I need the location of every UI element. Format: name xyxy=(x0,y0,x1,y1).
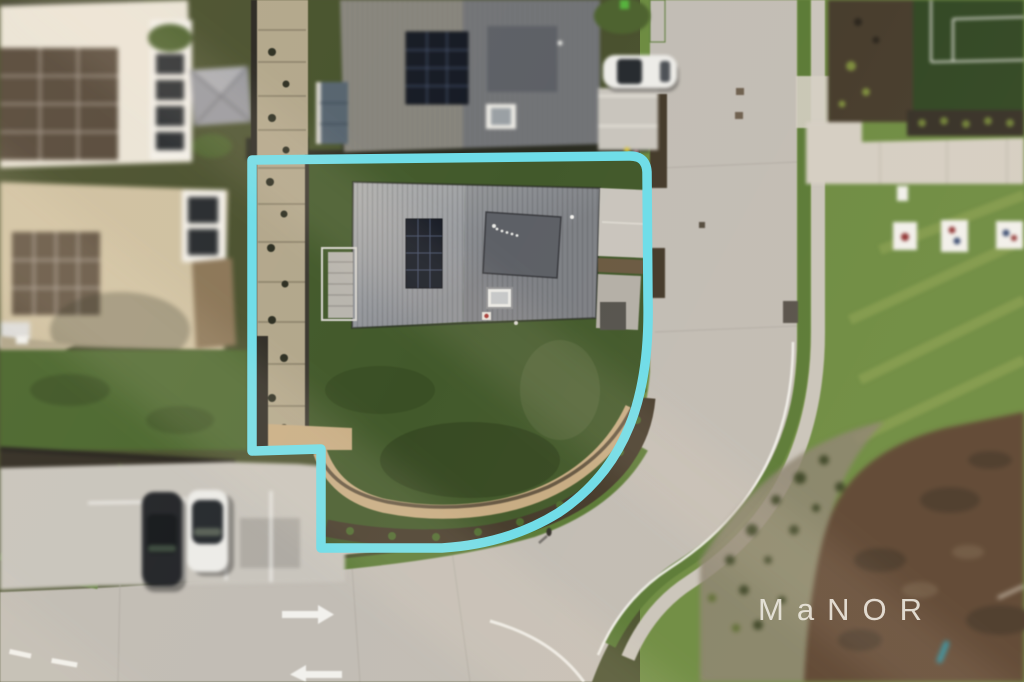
scene-svg xyxy=(0,0,1024,682)
top-house-group xyxy=(246,0,679,160)
timber-deck xyxy=(192,258,236,349)
building-cream-solar xyxy=(0,48,118,160)
stormwater-pit xyxy=(783,301,798,323)
white-car-road xyxy=(603,55,679,92)
roof-vent-red xyxy=(482,312,491,320)
strip-edge xyxy=(305,155,309,430)
top-house-solar xyxy=(406,32,468,104)
house-upper-roof xyxy=(483,212,561,278)
house-solar xyxy=(406,219,442,288)
white-car-parked xyxy=(187,490,234,576)
road-drain xyxy=(736,88,744,95)
road-mark xyxy=(699,222,705,228)
park-marker xyxy=(897,186,908,201)
roof-dot xyxy=(570,215,574,219)
driveway-timber xyxy=(598,258,643,274)
top-house-upper-roof xyxy=(487,26,557,92)
green-bin xyxy=(620,0,629,9)
top-driveway xyxy=(598,88,658,150)
garden-hedge xyxy=(148,24,192,52)
driveway-crossing xyxy=(796,76,830,128)
building-tan-skylights xyxy=(182,190,226,262)
roof-vent xyxy=(558,41,563,46)
roof-dot xyxy=(514,321,518,325)
top-house-corrugation xyxy=(340,0,600,152)
lawn-mottle xyxy=(146,406,214,434)
side-structure-solar xyxy=(316,82,348,144)
manor-watermark-logo: MaNOR xyxy=(758,592,1018,628)
top-house-skylight xyxy=(486,104,516,129)
small-white-object xyxy=(16,336,28,344)
patio-umbrella xyxy=(190,66,252,126)
left-lawn xyxy=(0,350,248,450)
aerial-photo: MaNOR xyxy=(0,0,1024,682)
black-car-parked xyxy=(142,492,186,592)
lawn-shade xyxy=(380,422,560,498)
lawn-shade xyxy=(325,366,435,414)
house-skylight xyxy=(487,288,512,308)
lawn-mottle xyxy=(30,374,110,406)
lawn-highlight xyxy=(520,340,600,440)
roof-corrugation xyxy=(352,182,600,328)
road-drain xyxy=(735,112,743,119)
garden-hedge xyxy=(192,134,232,158)
side-step-shadow xyxy=(600,302,626,330)
lot-house xyxy=(352,182,600,328)
